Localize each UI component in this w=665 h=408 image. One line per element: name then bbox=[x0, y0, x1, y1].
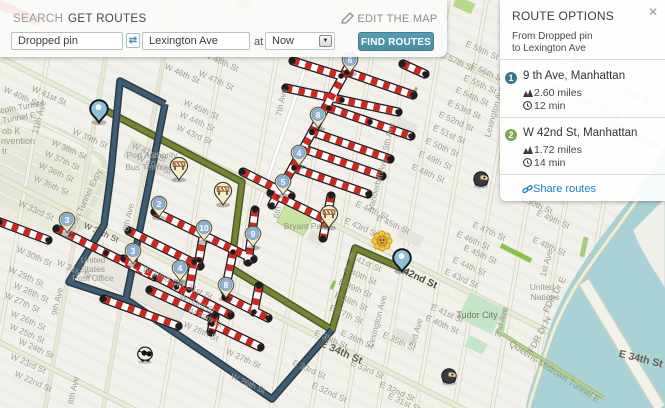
svg-text:10: 10 bbox=[199, 223, 209, 233]
svg-text:8: 8 bbox=[224, 280, 229, 290]
svg-text:5: 5 bbox=[281, 177, 286, 187]
svg-text:3: 3 bbox=[65, 215, 70, 225]
svg-text:nvention: nvention bbox=[1, 136, 35, 146]
svg-text:4: 4 bbox=[297, 148, 302, 158]
svg-text:Tudor City: Tudor City bbox=[456, 310, 498, 320]
svg-text:tr: tr bbox=[2, 146, 8, 156]
svg-text:Post Office: Post Office bbox=[72, 273, 114, 283]
svg-text:ob K: ob K bbox=[2, 126, 21, 136]
svg-text:4: 4 bbox=[178, 263, 183, 273]
svg-text:8: 8 bbox=[316, 110, 321, 120]
svg-text:Bus Terminal: Bus Terminal bbox=[126, 162, 175, 172]
svg-text:9: 9 bbox=[251, 229, 256, 239]
svg-text:Bryant Park: Bryant Park bbox=[284, 221, 329, 231]
svg-text:2: 2 bbox=[157, 199, 162, 209]
svg-text:3: 3 bbox=[131, 246, 136, 256]
svg-text:Port Authority: Port Authority bbox=[126, 150, 178, 160]
